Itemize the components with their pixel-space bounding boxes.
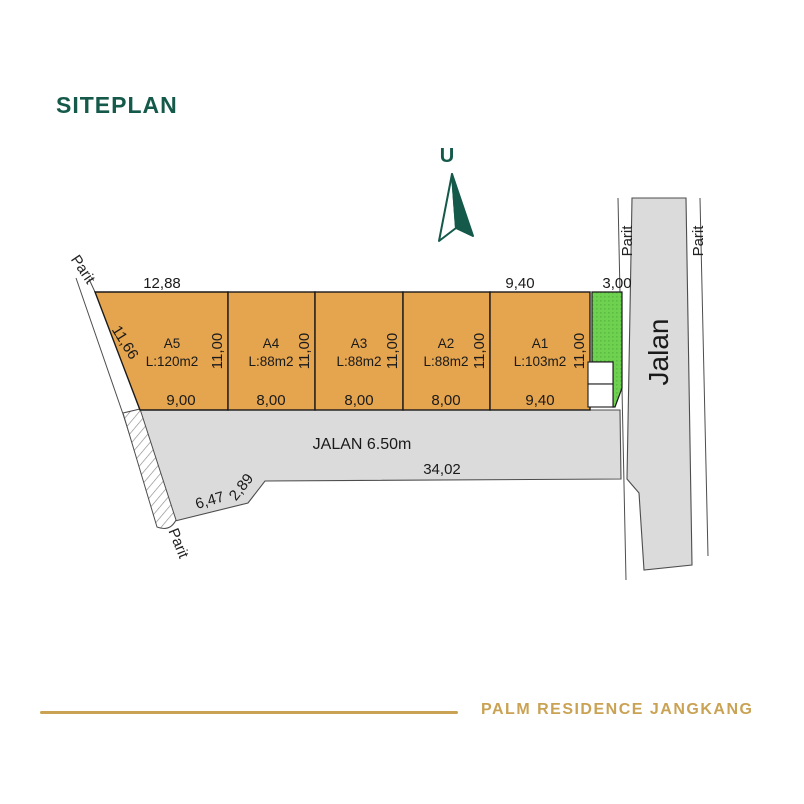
plot-a2-id: A2 bbox=[438, 336, 455, 351]
plot-a5-width: 9,00 bbox=[166, 392, 195, 409]
road-width-label: JALAN 6.50m bbox=[313, 436, 412, 453]
parit-label-road-left: Parit bbox=[619, 225, 636, 257]
plot-a1-depth: 11,00 bbox=[571, 333, 588, 369]
dim-road-frontage: 34,02 bbox=[423, 461, 461, 478]
parit-label-top-left: Parit bbox=[67, 252, 99, 288]
jalan-label: Jalan bbox=[643, 319, 674, 386]
utility-box-bottom bbox=[588, 384, 613, 407]
plot-a5-depth: 11,00 bbox=[209, 333, 226, 369]
plot-a1-area: L:103m2 bbox=[514, 354, 567, 369]
plot-a5-area: L:120m2 bbox=[146, 354, 199, 369]
siteplan-page: SITEPLAN bbox=[0, 0, 804, 804]
plot-a4-id: A4 bbox=[263, 336, 280, 351]
north-label: U bbox=[440, 145, 454, 167]
plot-a3-area: L:88m2 bbox=[336, 354, 381, 369]
dim-top-a5: 12,88 bbox=[143, 275, 181, 292]
plot-a1-id: A1 bbox=[532, 336, 549, 351]
footer-divider-line bbox=[40, 711, 458, 714]
plot-a3-width: 8,00 bbox=[344, 392, 373, 409]
plot-a3-depth: 11,00 bbox=[384, 333, 401, 369]
parit-label-bottom-left: Parit bbox=[165, 526, 193, 562]
siteplan-drawing: U 12,88 9,40 3,00 11,66 A5 L:120m2 9,00 … bbox=[0, 0, 804, 804]
plot-a5-id: A5 bbox=[164, 336, 181, 351]
plot-a4-area: L:88m2 bbox=[248, 354, 293, 369]
plot-a1-width: 9,40 bbox=[525, 392, 554, 409]
parit-label-road-right: Parit bbox=[690, 225, 707, 257]
plot-a3-id: A3 bbox=[351, 336, 368, 351]
plot-a2-area: L:88m2 bbox=[423, 354, 468, 369]
dim-green-width: 3,00 bbox=[602, 275, 631, 292]
plot-a4-width: 8,00 bbox=[256, 392, 285, 409]
plot-a2-depth: 11,00 bbox=[471, 333, 488, 369]
north-arrow-icon bbox=[439, 174, 473, 241]
footer-title: PALM RESIDENCE JANGKANG bbox=[481, 701, 753, 719]
utility-box-top bbox=[588, 362, 613, 384]
plot-a4-depth: 11,00 bbox=[296, 333, 313, 369]
plot-a2-width: 8,00 bbox=[431, 392, 460, 409]
dim-top-a1: 9,40 bbox=[505, 275, 534, 292]
